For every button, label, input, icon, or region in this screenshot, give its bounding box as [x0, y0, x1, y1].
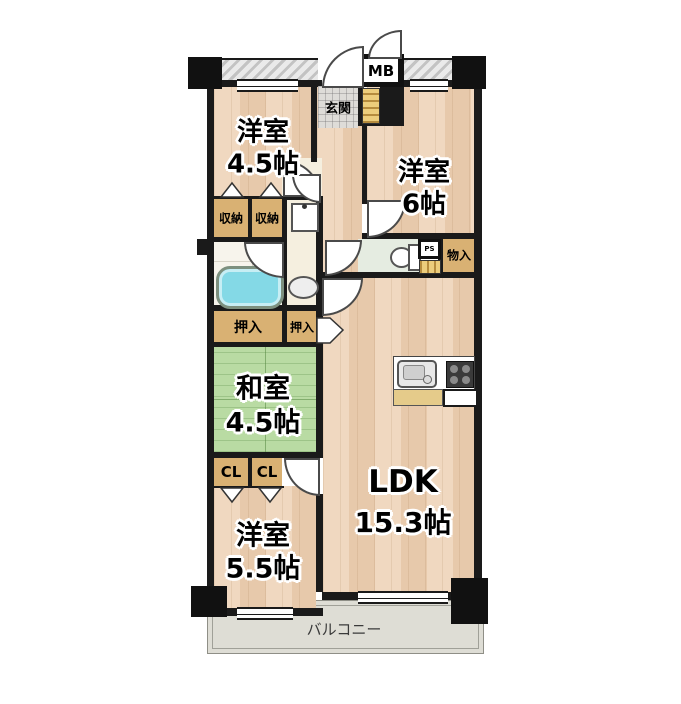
- cl1-label: CL: [221, 463, 242, 481]
- wall-oshiire-divider: [282, 311, 287, 342]
- mb-shaft: [380, 86, 404, 124]
- kitchen-refrigerator-space: [443, 389, 478, 407]
- stove-burner: [450, 376, 458, 384]
- japanese-size-label: 4.5帖: [226, 401, 301, 440]
- kitchen-counter: [393, 389, 443, 406]
- corridor-edge-line: [214, 58, 318, 60]
- shunou2-label: 収納: [255, 210, 279, 227]
- window-western2-top: [410, 79, 448, 92]
- window-western1-top: [237, 79, 298, 92]
- balcony-label: バルコニー: [307, 619, 382, 640]
- shunou2-fold-door-icon: [260, 183, 282, 197]
- wall-stub-left: [197, 239, 207, 255]
- wall-oshiire-bottom: [214, 342, 316, 347]
- kitchen-stove: [446, 361, 474, 388]
- cl2-label: CL: [257, 463, 278, 481]
- shunou1-fold-door-icon: [221, 183, 243, 197]
- mb-door-arc: [368, 30, 402, 59]
- ps-louver: [419, 260, 441, 274]
- kitchen-sink-basin: [403, 365, 425, 380]
- ldk-name-label: LDK: [368, 464, 438, 500]
- window-ldk-bottom: [358, 591, 448, 604]
- washer-faucet-dot: [302, 204, 307, 209]
- common-corridor-hatch-left: [214, 60, 318, 80]
- wall-western2-left: [362, 124, 367, 204]
- room-ldk-floor: [323, 278, 475, 592]
- wall-cl-divider: [248, 458, 252, 486]
- western1-size-label: 4.5帖: [227, 144, 299, 181]
- stove-burner: [450, 365, 458, 373]
- pillar-bottom-right: [451, 578, 488, 624]
- stove-burner: [462, 365, 470, 373]
- stove-burner: [462, 376, 470, 384]
- entrance-label: 玄関: [325, 98, 351, 117]
- washing-machine: [291, 203, 319, 232]
- wall-ldk-left-lower: [316, 494, 323, 592]
- wall-left-outer: [207, 60, 214, 616]
- pipe-space: PS: [418, 239, 441, 259]
- cl2-fold-door-icon: [259, 488, 281, 502]
- kitchen-faucet: [423, 375, 432, 384]
- washbasin: [288, 276, 319, 299]
- ldk-size-label: 15.3帖: [354, 501, 451, 541]
- wall-shunou-divider: [248, 199, 252, 237]
- wall-right-outer: [474, 58, 482, 600]
- oshiire2-label: 押入: [290, 319, 314, 336]
- kitchen-sink: [397, 360, 437, 388]
- entrance-door-arc: [322, 46, 364, 88]
- pipe-space-label: PS: [421, 242, 438, 256]
- meter-box-label: MB: [364, 59, 398, 82]
- common-corridor-hatch-right: [404, 60, 452, 80]
- western3-size-label: 5.5帖: [226, 547, 301, 586]
- cl1-fold-door-icon: [221, 488, 243, 502]
- corridor-edge-line: [404, 58, 452, 60]
- floor-plan: MB PS 洋室 4.5帖 洋室: [0, 0, 681, 704]
- western2-size-label: 6帖: [402, 184, 446, 221]
- pillar-top-left: [188, 57, 222, 89]
- window-western3-bottom: [237, 607, 293, 620]
- pillar-top-right: [452, 56, 486, 89]
- shoe-cabinet: [362, 88, 380, 124]
- monoire-label: 物入: [447, 247, 471, 264]
- pillar-bottom-left: [191, 586, 227, 617]
- oshiire1-label: 押入: [234, 317, 262, 337]
- japanese-room-slider-icon: [317, 318, 343, 343]
- shunou1-label: 収納: [219, 210, 243, 227]
- wall-western1-right: [311, 87, 317, 162]
